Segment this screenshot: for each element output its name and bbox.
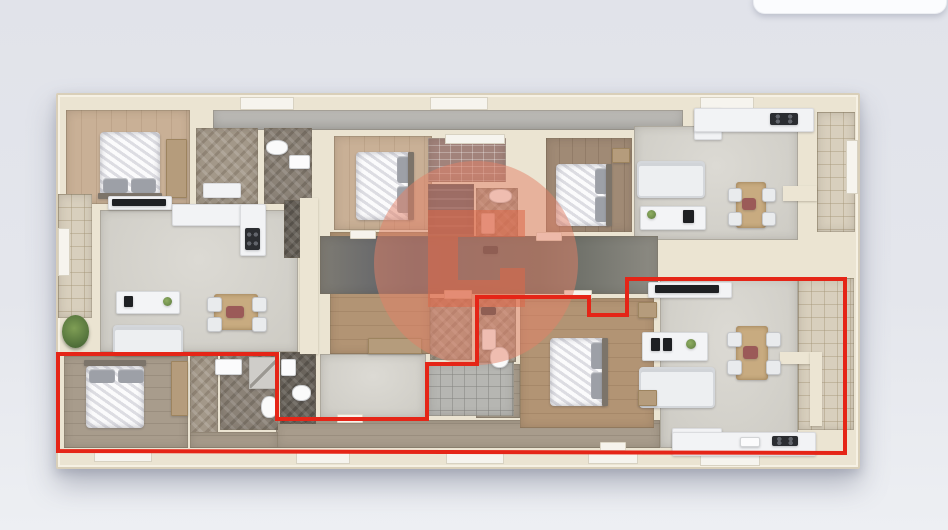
headboard — [602, 338, 608, 406]
top-terrace-strip — [213, 110, 683, 130]
shower-head-top-center — [483, 246, 498, 254]
chair — [762, 212, 776, 226]
tile-patio-bottom-floor — [428, 362, 514, 416]
floorplan-render — [0, 0, 948, 530]
window — [446, 452, 504, 464]
door — [337, 414, 363, 423]
chair — [252, 317, 267, 332]
plant-media-bottom-right — [686, 339, 696, 349]
shower-bottom-left — [249, 357, 279, 389]
frame-bottom-right — [663, 338, 672, 351]
wardrobe-bottom-left — [171, 361, 188, 416]
window — [94, 450, 152, 462]
sofa-top-right — [637, 161, 705, 198]
chair — [727, 332, 742, 347]
window — [240, 97, 294, 110]
brick-patio-floor — [428, 138, 506, 182]
sofa-top-left — [113, 325, 183, 356]
wardrobe-top-left — [166, 139, 187, 198]
door — [536, 232, 562, 241]
kitchen-sink-bottom-right — [740, 437, 760, 447]
balcony-wall-bottom-right2 — [810, 352, 822, 426]
corridor-center-floor — [320, 236, 658, 294]
plant-media-top-right — [647, 210, 656, 219]
window — [58, 228, 70, 276]
cooktop-top-right — [770, 113, 798, 125]
hall-bottom-left-floor — [190, 432, 278, 448]
centerpiece — [743, 346, 758, 359]
stairwell-floor — [428, 184, 474, 236]
chair — [766, 332, 781, 347]
side-table-bottom-center — [638, 390, 657, 406]
pillow — [89, 369, 115, 383]
balcony-wall-top-right — [783, 186, 817, 201]
overlay-card — [753, 0, 947, 14]
pillow — [118, 369, 144, 383]
wardrobe-mid-left — [368, 338, 422, 354]
toilet-top-left — [266, 140, 288, 155]
toilet-bottom-left — [261, 396, 278, 418]
shower-head-bottom-center — [481, 307, 496, 315]
door — [564, 290, 592, 299]
centerpiece — [742, 198, 756, 210]
pillow — [131, 178, 156, 193]
toilet-bottom-center — [490, 347, 509, 368]
chair — [252, 297, 267, 312]
side-table-top-right — [612, 148, 630, 163]
partition-wall-left — [300, 198, 318, 354]
window — [430, 97, 488, 110]
door — [350, 230, 376, 239]
frame-top-right — [683, 210, 694, 223]
centerpiece — [226, 306, 244, 318]
bathroom-notch-floor — [430, 298, 472, 360]
sink-top-left — [289, 155, 310, 169]
door — [444, 290, 472, 299]
hall-mid-left-floor — [320, 354, 426, 418]
frame-bottom-right — [651, 338, 660, 351]
headboard — [408, 152, 414, 220]
window — [296, 452, 350, 464]
sink-top-center — [481, 213, 495, 234]
chair — [728, 188, 742, 202]
window — [445, 134, 505, 144]
chair — [207, 317, 222, 332]
sink-bottom-left2 — [281, 359, 296, 376]
door — [600, 442, 626, 451]
tv-top-left — [112, 199, 166, 206]
tv-small-top-left — [124, 296, 133, 307]
desk-top-left — [203, 183, 241, 198]
cooktop-bottom-right — [772, 436, 798, 446]
side-table-bottom-center — [638, 302, 657, 318]
window — [588, 452, 638, 464]
plant-media-top-left — [163, 297, 172, 306]
chair — [207, 297, 222, 312]
window — [846, 140, 858, 194]
tv-bottom-right — [655, 285, 719, 293]
chair — [727, 360, 742, 375]
chair — [728, 212, 742, 226]
cooktop-top-left — [245, 228, 260, 250]
chair — [766, 360, 781, 375]
sink-bottom-center — [482, 329, 496, 350]
toilet-top-center — [489, 189, 512, 203]
plant-top-left — [62, 315, 89, 348]
sink-bottom-left — [215, 359, 242, 375]
toilet-bottom-left2 — [292, 385, 311, 401]
headboard — [606, 164, 612, 226]
pillow — [103, 178, 128, 193]
chair — [762, 188, 776, 202]
